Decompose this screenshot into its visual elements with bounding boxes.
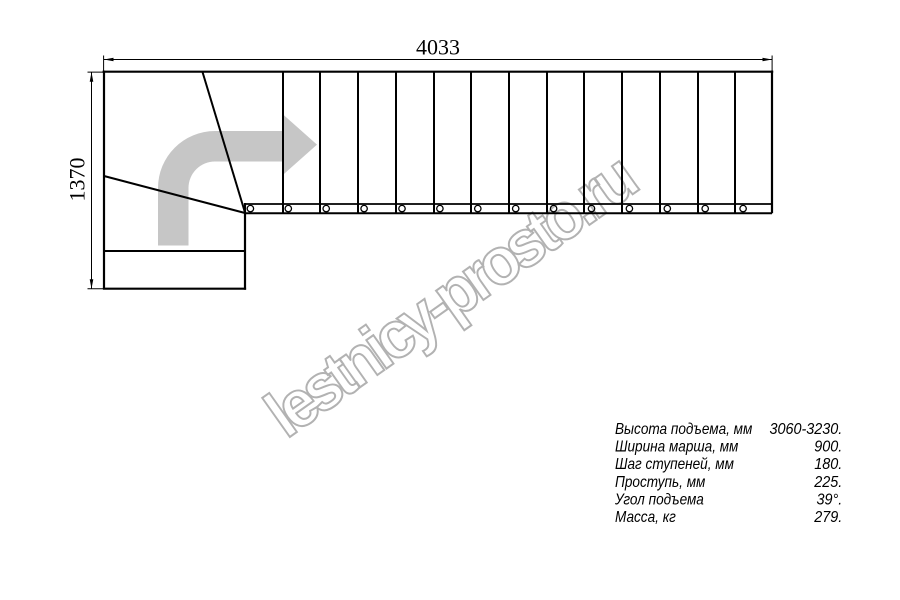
svg-text:900.: 900. xyxy=(814,438,842,456)
svg-text:Угол подъема: Угол подъема xyxy=(614,491,704,508)
svg-text:Шаг ступеней, мм: Шаг ступеней, мм xyxy=(615,456,734,473)
svg-text:39°.: 39°. xyxy=(817,491,843,509)
svg-text:225.: 225. xyxy=(813,473,842,491)
svg-text:Масса, кг: Масса, кг xyxy=(615,509,676,526)
svg-text:1370: 1370 xyxy=(65,158,90,202)
svg-text:Высота подъема, мм: Высота подъема, мм xyxy=(615,421,752,438)
svg-text:Ширина марша, мм: Ширина марша, мм xyxy=(615,439,738,456)
svg-text:180.: 180. xyxy=(814,456,842,474)
svg-text:279.: 279. xyxy=(813,508,842,526)
svg-text:3060-3230.: 3060-3230. xyxy=(769,420,842,438)
svg-text:Проступь, мм: Проступь, мм xyxy=(615,474,705,491)
svg-text:4033: 4033 xyxy=(416,34,460,59)
